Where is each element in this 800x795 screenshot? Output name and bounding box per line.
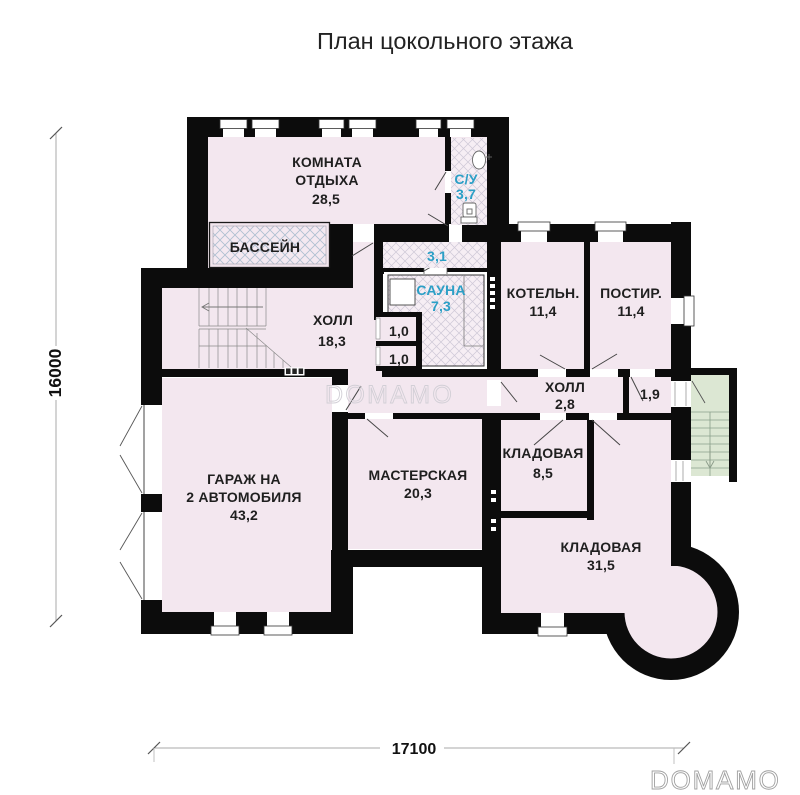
- svg-text:ОТДЫХА: ОТДЫХА: [295, 172, 358, 188]
- svg-text:28,5: 28,5: [312, 191, 340, 207]
- svg-text:2,8: 2,8: [555, 396, 575, 412]
- svg-text:11,4: 11,4: [617, 303, 644, 319]
- svg-text:1,9: 1,9: [640, 386, 660, 402]
- svg-text:ХОЛЛ: ХОЛЛ: [313, 312, 353, 328]
- svg-text:43,2: 43,2: [230, 507, 258, 523]
- svg-text:КОМНАТА: КОМНАТА: [292, 154, 362, 170]
- svg-text:20,3: 20,3: [404, 485, 432, 501]
- svg-text:МАСТЕРСКАЯ: МАСТЕРСКАЯ: [369, 467, 468, 483]
- svg-text:17100: 17100: [392, 741, 437, 758]
- svg-text:С/У: С/У: [454, 171, 477, 187]
- svg-text:САУНА: САУНА: [416, 282, 465, 298]
- svg-text:16000: 16000: [45, 348, 65, 397]
- svg-text:ХОЛЛ: ХОЛЛ: [545, 379, 585, 395]
- svg-text:DOMAMO: DOMAMO: [325, 381, 454, 409]
- svg-text:31,5: 31,5: [587, 557, 615, 573]
- svg-text:2 АВТОМОБИЛЯ: 2 АВТОМОБИЛЯ: [186, 489, 301, 505]
- svg-text:БАССЕЙН: БАССЕЙН: [230, 238, 300, 255]
- svg-text:1,0: 1,0: [389, 323, 409, 339]
- svg-text:8,5: 8,5: [533, 465, 553, 481]
- svg-text:3,7: 3,7: [456, 186, 476, 202]
- svg-text:КОТЕЛЬН.: КОТЕЛЬН.: [507, 285, 580, 301]
- svg-text:DOMAMO: DOMAMO: [650, 765, 781, 795]
- svg-text:11,4: 11,4: [529, 303, 556, 319]
- svg-text:18,3: 18,3: [318, 333, 346, 349]
- svg-text:КЛАДОВАЯ: КЛАДОВАЯ: [560, 539, 641, 555]
- svg-text:3,1: 3,1: [427, 248, 447, 264]
- svg-text:1,0: 1,0: [389, 351, 409, 367]
- svg-text:ГАРАЖ НА: ГАРАЖ НА: [207, 471, 281, 487]
- svg-text:КЛАДОВАЯ: КЛАДОВАЯ: [502, 445, 583, 461]
- svg-text:ПОСТИР.: ПОСТИР.: [600, 285, 662, 301]
- svg-text:7,3: 7,3: [431, 298, 451, 314]
- svg-text:План цокольного этажа: План цокольного этажа: [317, 28, 574, 54]
